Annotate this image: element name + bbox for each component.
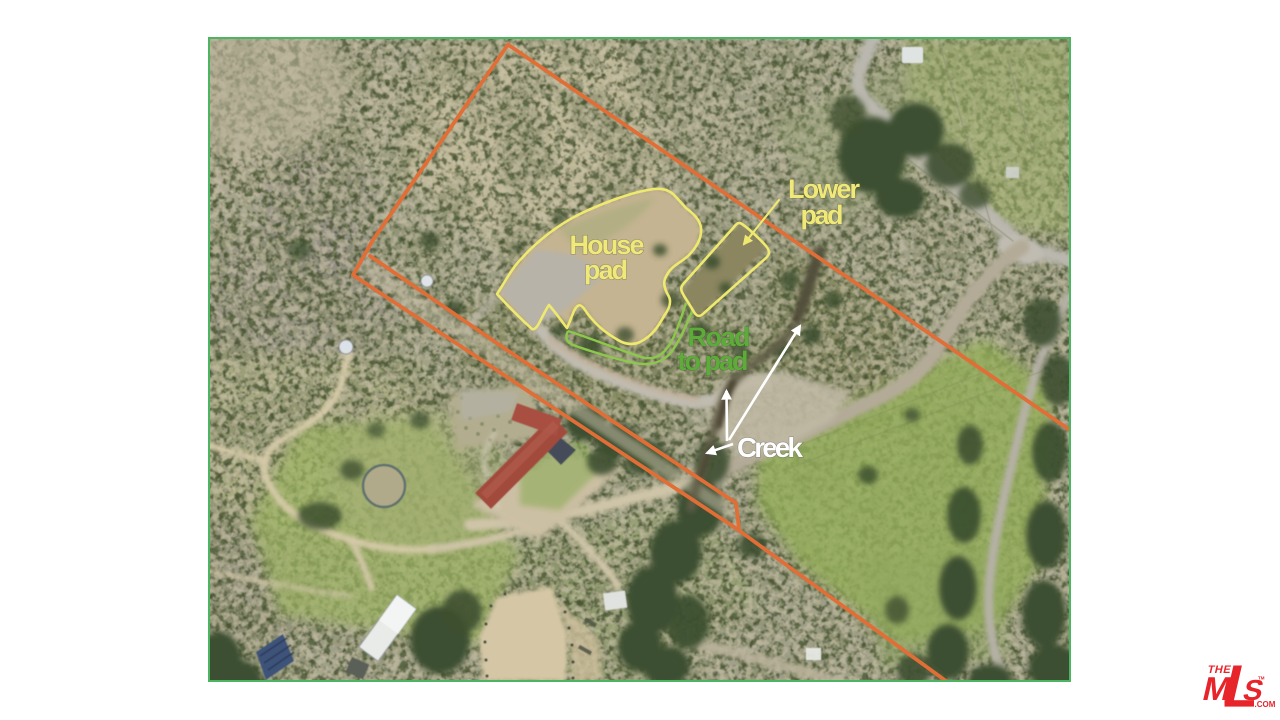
svg-text:TM: TM <box>1258 676 1265 681</box>
svg-text:to pad: to pad <box>678 346 749 376</box>
svg-text:pad: pad <box>584 255 628 285</box>
svg-text:pad: pad <box>801 200 844 230</box>
svg-text:Creek: Creek <box>737 432 803 463</box>
svg-text:.COM: .COM <box>1255 700 1276 709</box>
